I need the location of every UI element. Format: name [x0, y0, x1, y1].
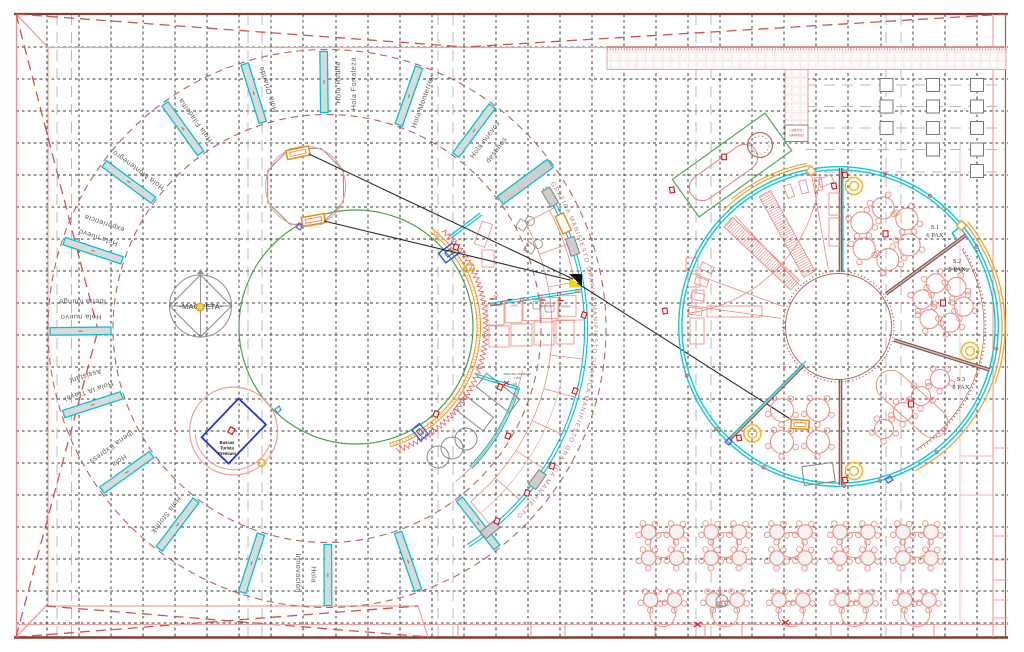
- svg-text:HORNO: HORNO: [559, 305, 571, 309]
- svg-text:NEVERA: NEVERA: [490, 303, 502, 307]
- svg-text:S.2: S.2: [953, 258, 962, 265]
- svg-text:Hola Fortaleza: Hola Fortaleza: [348, 57, 358, 110]
- svg-text:iberia lounge: iberia lounge: [59, 297, 106, 306]
- svg-text:Innovación: Innovación: [294, 553, 303, 592]
- svg-text:Turista: Turista: [220, 446, 234, 451]
- svg-text:6 PAX: 6 PAX: [926, 232, 944, 239]
- svg-text:x2: x2: [494, 294, 498, 298]
- svg-text:LAVA: LAVA: [510, 304, 517, 308]
- svg-text:1.8m: 1.8m: [514, 376, 521, 380]
- svg-text:Hola Redife: Hola Redife: [333, 61, 343, 104]
- svg-text:S.3: S.3: [957, 376, 966, 383]
- svg-text:8 PAX: 8 PAX: [952, 384, 970, 391]
- svg-text:Premium: Premium: [218, 451, 236, 456]
- svg-text:GRUPO: GRUPO: [791, 129, 803, 133]
- svg-text:S.1: S.1: [931, 224, 940, 231]
- svg-text:Buscas: Buscas: [220, 440, 236, 445]
- svg-text:HAPKIDO: HAPKIDO: [789, 134, 804, 138]
- svg-text:ARMARIO: ARMARIO: [540, 304, 555, 308]
- svg-text:5 PAX: 5 PAX: [948, 266, 966, 273]
- svg-text:Hola: Hola: [309, 566, 318, 583]
- svg-text:Hola nuevo: Hola nuevo: [60, 312, 101, 321]
